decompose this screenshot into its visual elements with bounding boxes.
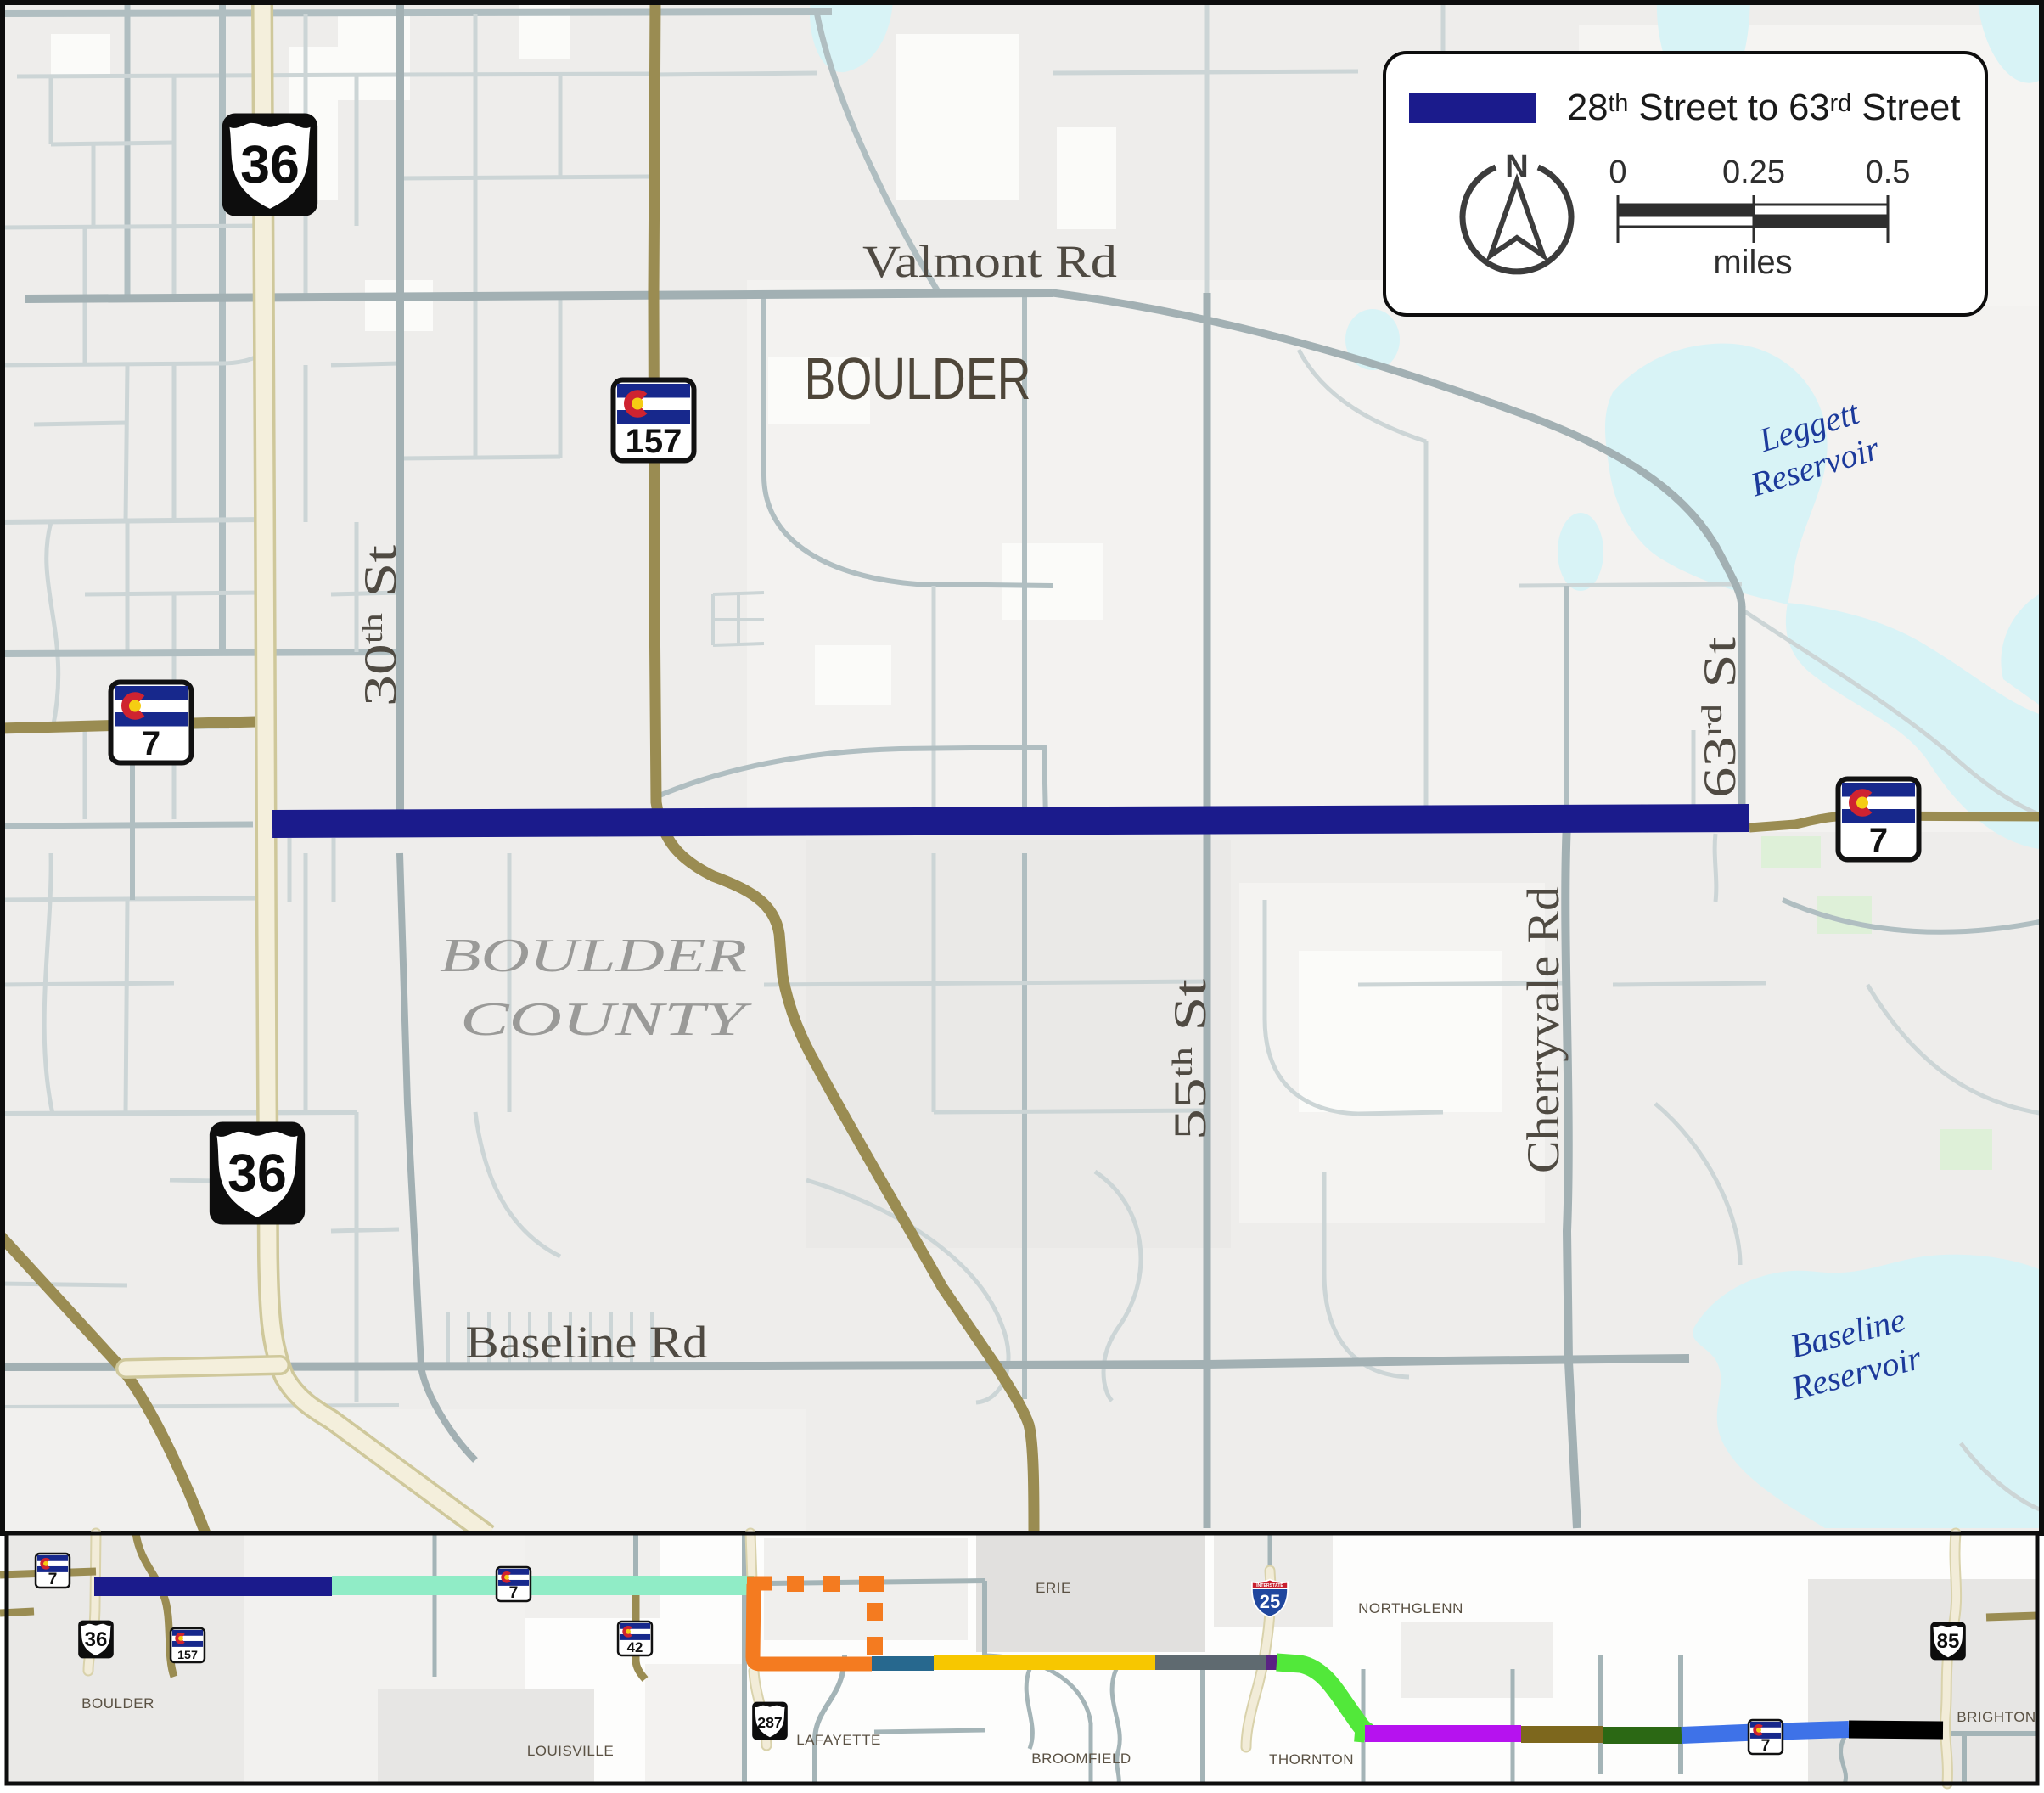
svg-text:7: 7 [509, 1584, 519, 1602]
svg-text:0.25: 0.25 [1722, 155, 1785, 190]
svg-text:BRIGHTON: BRIGHTON [1957, 1709, 2036, 1725]
svg-text:LOUISVILLE: LOUISVILLE [527, 1743, 614, 1759]
svg-text:85: 85 [1937, 1630, 1960, 1653]
svg-text:NORTHGLENN: NORTHGLENN [1358, 1600, 1463, 1616]
svg-text:ERIE: ERIE [1036, 1580, 1071, 1596]
svg-text:287: 287 [757, 1714, 783, 1731]
svg-text:BOULDER: BOULDER [805, 346, 1031, 412]
svg-text:36: 36 [240, 136, 300, 195]
svg-text:miles: miles [1713, 244, 1792, 281]
svg-text:7: 7 [142, 725, 160, 762]
svg-text:157: 157 [177, 1649, 198, 1662]
svg-text:7: 7 [48, 1571, 58, 1588]
svg-text:0.5: 0.5 [1866, 155, 1911, 190]
svg-text:36: 36 [85, 1628, 108, 1651]
svg-text:LAFAYETTE: LAFAYETTE [796, 1732, 881, 1748]
svg-text:Valmont Rd: Valmont Rd [862, 236, 1117, 287]
svg-text:36: 36 [227, 1144, 287, 1204]
svg-text:0: 0 [1609, 155, 1626, 190]
svg-text:BROOMFIELD: BROOMFIELD [1031, 1751, 1131, 1767]
svg-text:Cherryvale Rd: Cherryvale Rd [1518, 886, 1569, 1173]
svg-text:BOULDER: BOULDER [81, 1695, 154, 1711]
svg-text:7: 7 [1869, 822, 1888, 859]
svg-text:N: N [1505, 149, 1528, 184]
svg-text:Baseline Rd: Baseline Rd [466, 1317, 708, 1368]
svg-text:157: 157 [626, 423, 682, 460]
svg-text:COUNTY: COUNTY [460, 993, 753, 1046]
svg-text:THORNTON: THORNTON [1269, 1751, 1354, 1768]
svg-text:42: 42 [627, 1639, 643, 1655]
svg-text:7: 7 [1761, 1737, 1771, 1755]
svg-text:BOULDER: BOULDER [440, 930, 747, 982]
